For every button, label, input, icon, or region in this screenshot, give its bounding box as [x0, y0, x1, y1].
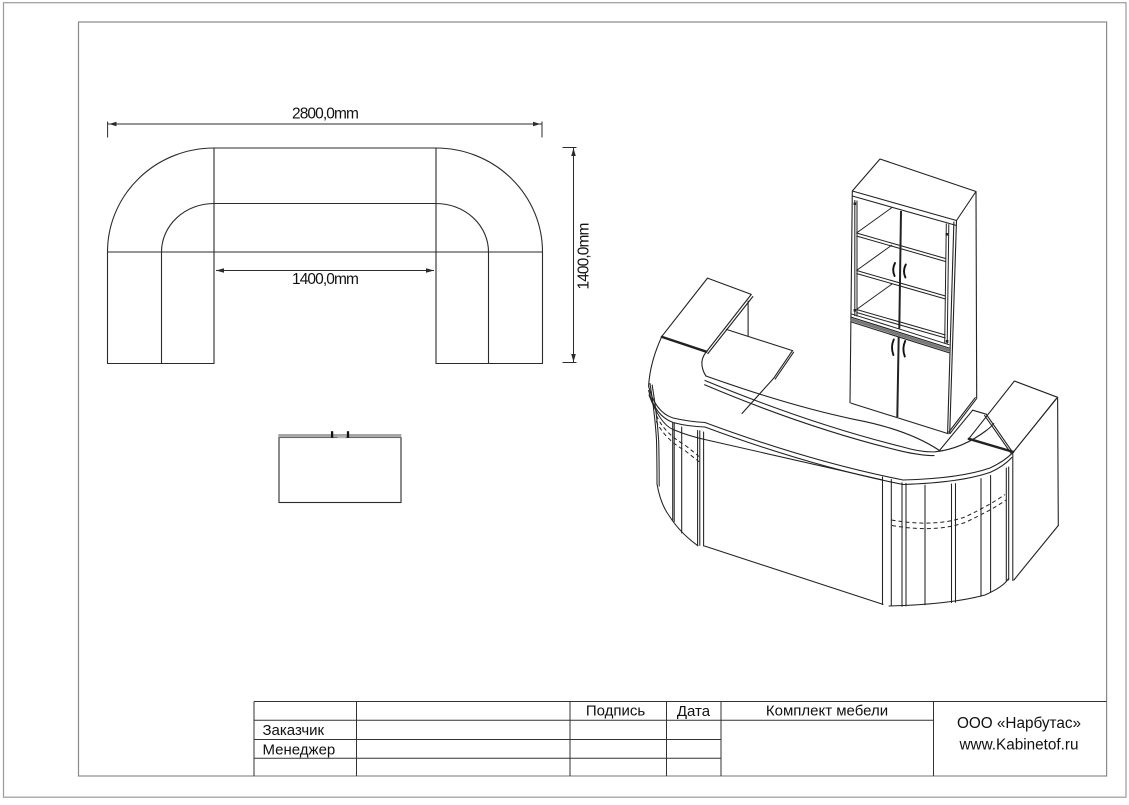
svg-text:www.Kabinetof.ru: www.Kabinetof.ru	[958, 737, 1078, 754]
svg-text:2800,0mm: 2800,0mm	[292, 106, 358, 123]
svg-text:Заказчик: Заказчик	[263, 722, 325, 739]
svg-text:1400,0mm: 1400,0mm	[292, 271, 358, 288]
svg-text:ООО «Нарбутас»: ООО «Нарбутас»	[957, 715, 1081, 732]
svg-text:Подпись: Подпись	[586, 703, 646, 720]
svg-text:1400,0mm: 1400,0mm	[576, 223, 593, 289]
svg-text:Дата: Дата	[677, 703, 711, 720]
svg-text:Менеджер: Менеджер	[263, 741, 336, 758]
svg-text:Комплект мебели: Комплект мебели	[766, 703, 888, 720]
